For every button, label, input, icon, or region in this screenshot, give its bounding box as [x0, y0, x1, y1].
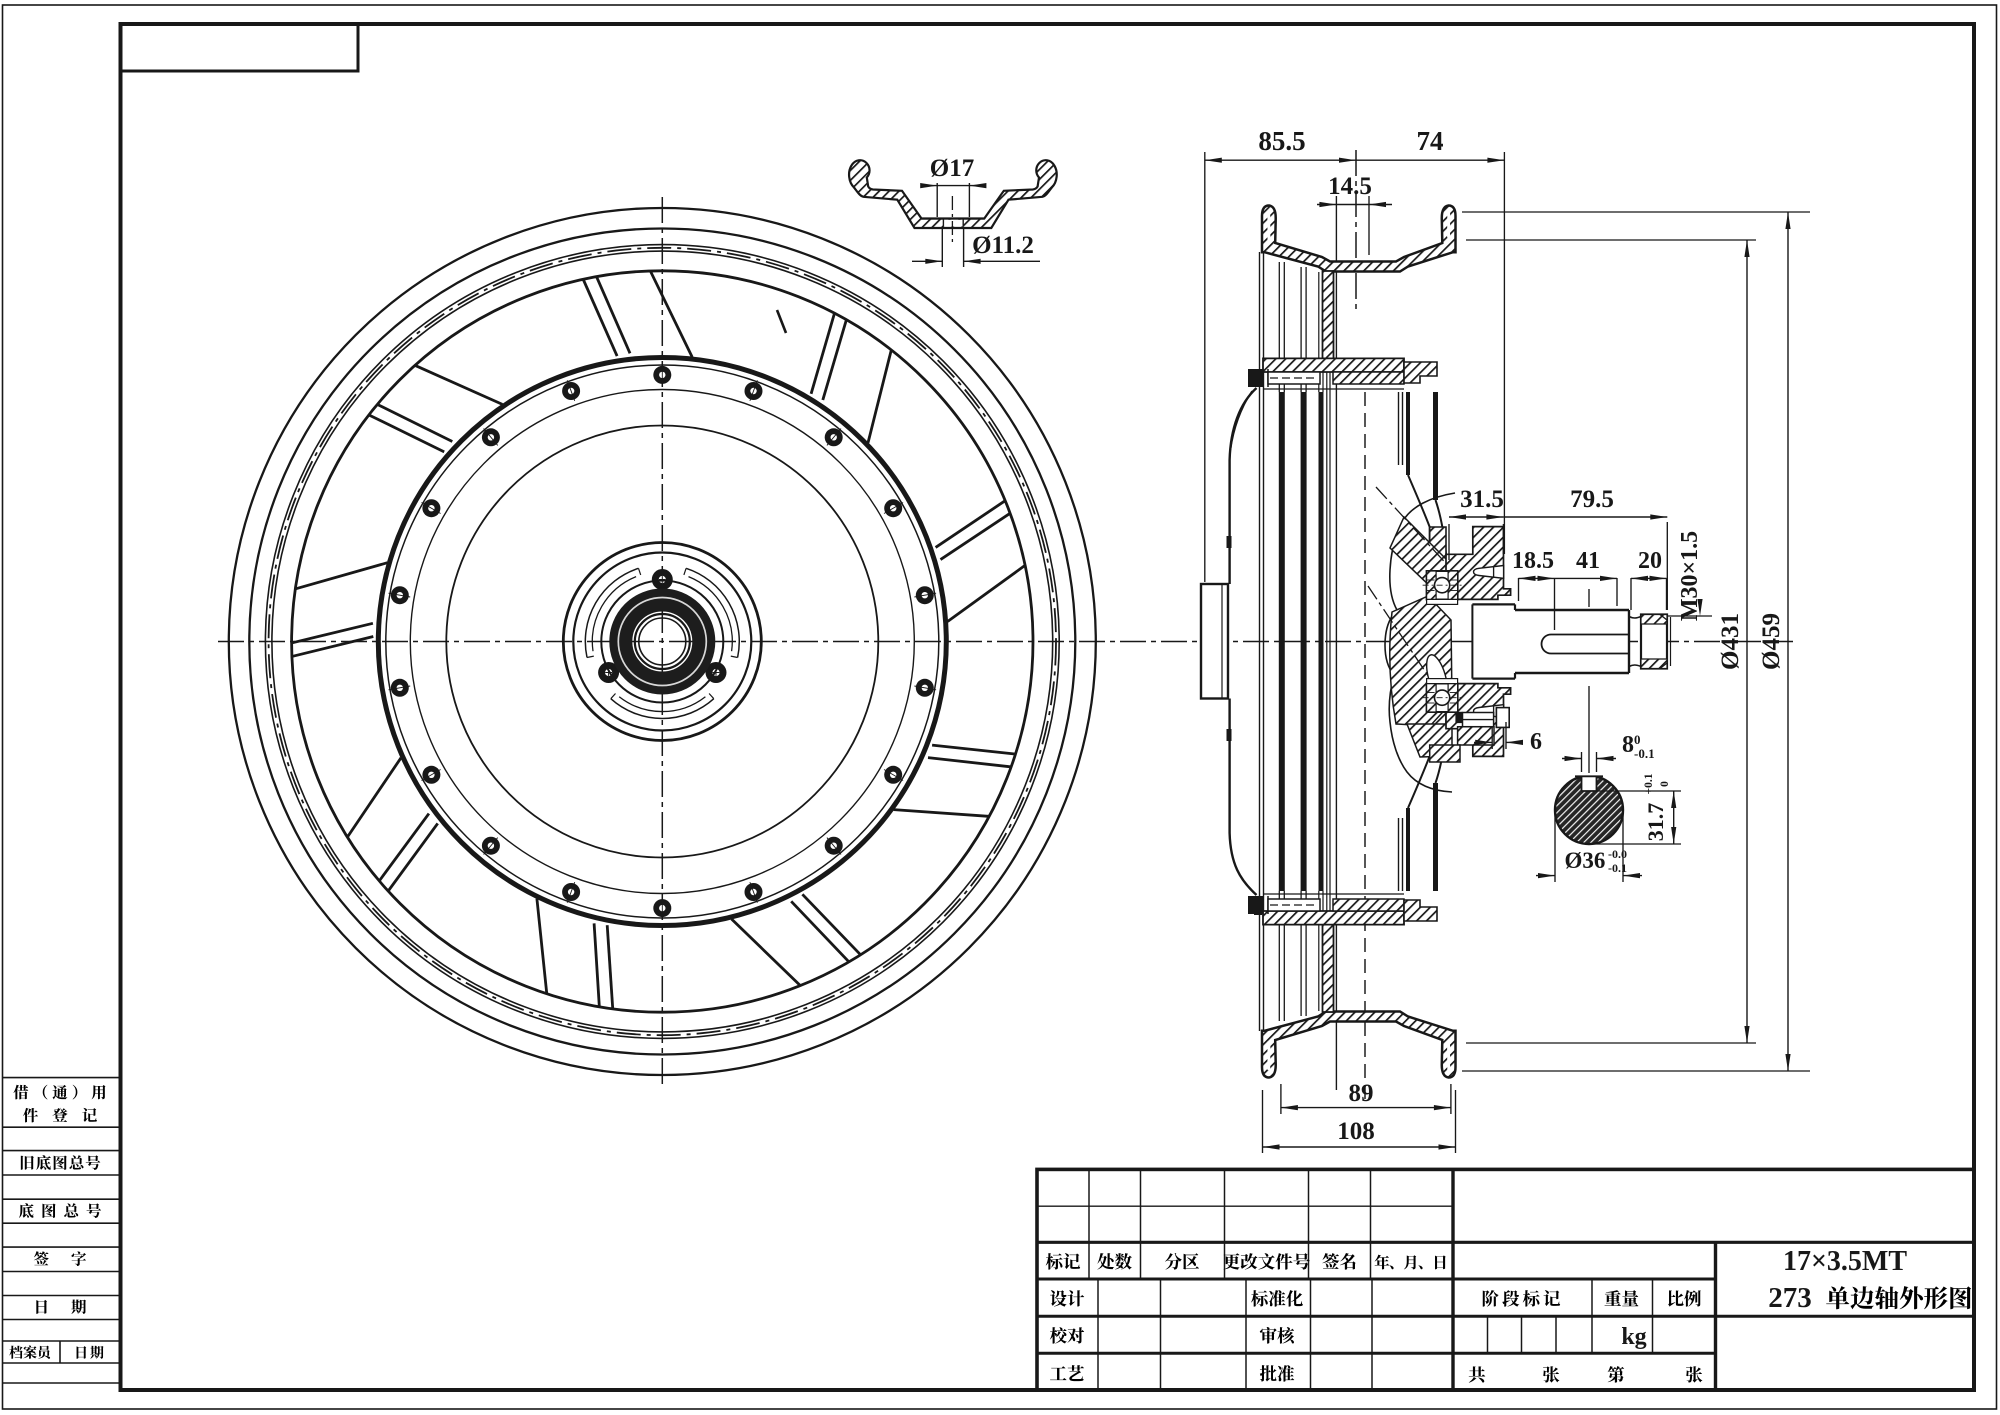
svg-text:31.5: 31.5	[1460, 486, 1504, 513]
svg-text:273: 273	[1768, 1282, 1812, 1314]
svg-text:8: 8	[1622, 732, 1634, 758]
svg-text:108: 108	[1337, 1118, 1375, 1145]
svg-text:-0.1: -0.1	[1634, 746, 1655, 761]
svg-text:18.5: 18.5	[1512, 548, 1554, 574]
svg-text:6: 6	[1530, 729, 1542, 755]
svg-text:Ø11.2: Ø11.2	[972, 232, 1034, 259]
svg-text:79.5: 79.5	[1570, 486, 1614, 513]
svg-text:-0.0: -0.0	[1608, 847, 1627, 861]
svg-text:-0.1: -0.1	[1608, 861, 1627, 875]
svg-text:85.5: 85.5	[1258, 126, 1305, 156]
svg-text:41: 41	[1576, 548, 1600, 574]
svg-text:Ø36: Ø36	[1565, 848, 1606, 873]
svg-text:20: 20	[1638, 548, 1662, 574]
svg-text:31.7: 31.7	[1643, 803, 1668, 842]
svg-text:+0.1: +0.1	[1643, 773, 1655, 794]
svg-text:0: 0	[1659, 781, 1671, 787]
svg-text:14.5: 14.5	[1328, 173, 1372, 200]
svg-text:Ø17: Ø17	[930, 155, 974, 182]
svg-text:Ø459: Ø459	[1758, 613, 1785, 670]
svg-text:0: 0	[1634, 732, 1641, 747]
svg-text:kg: kg	[1621, 1324, 1646, 1350]
svg-text:Ø431: Ø431	[1717, 613, 1744, 670]
svg-text:17×3.5MT: 17×3.5MT	[1783, 1246, 1907, 1277]
svg-text:89: 89	[1349, 1080, 1374, 1107]
svg-text:M30×1.5: M30×1.5	[1677, 531, 1703, 621]
svg-text:74: 74	[1417, 126, 1444, 156]
